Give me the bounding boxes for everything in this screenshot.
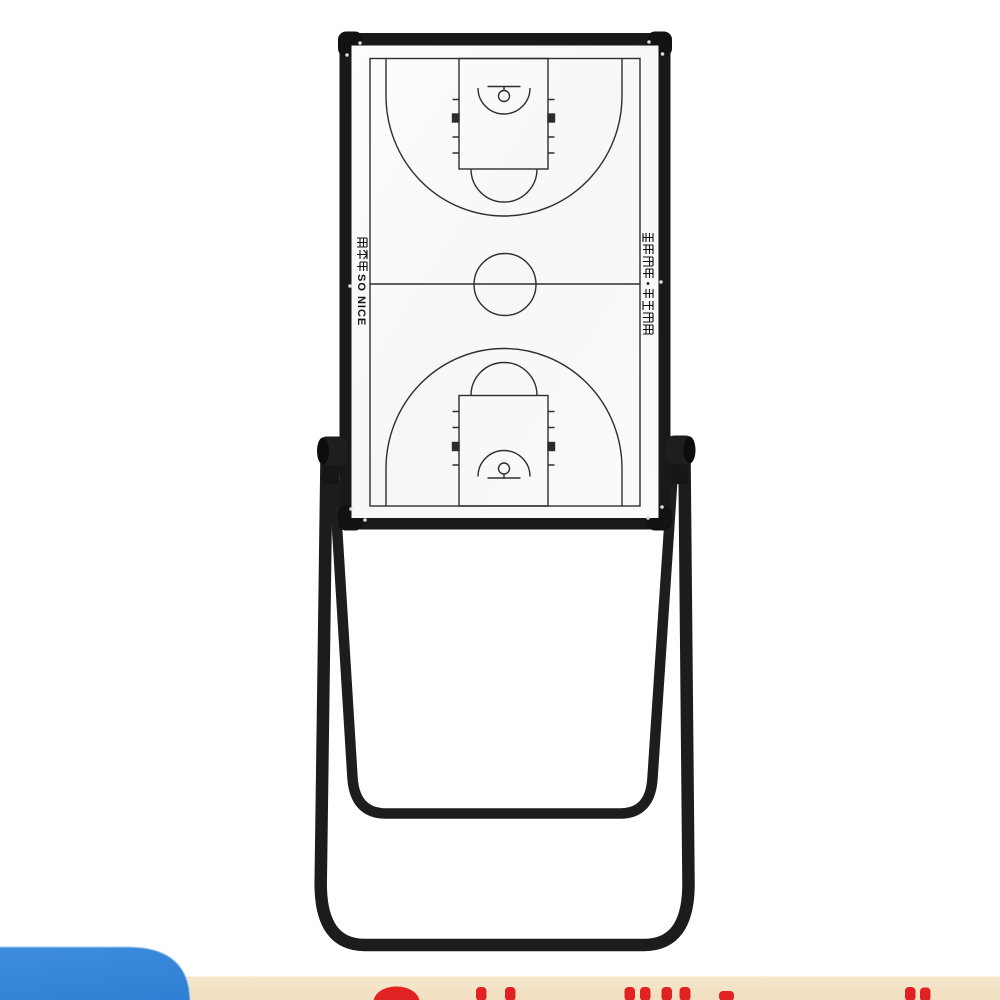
svg-text:SO NICE: SO NICE	[355, 274, 367, 326]
